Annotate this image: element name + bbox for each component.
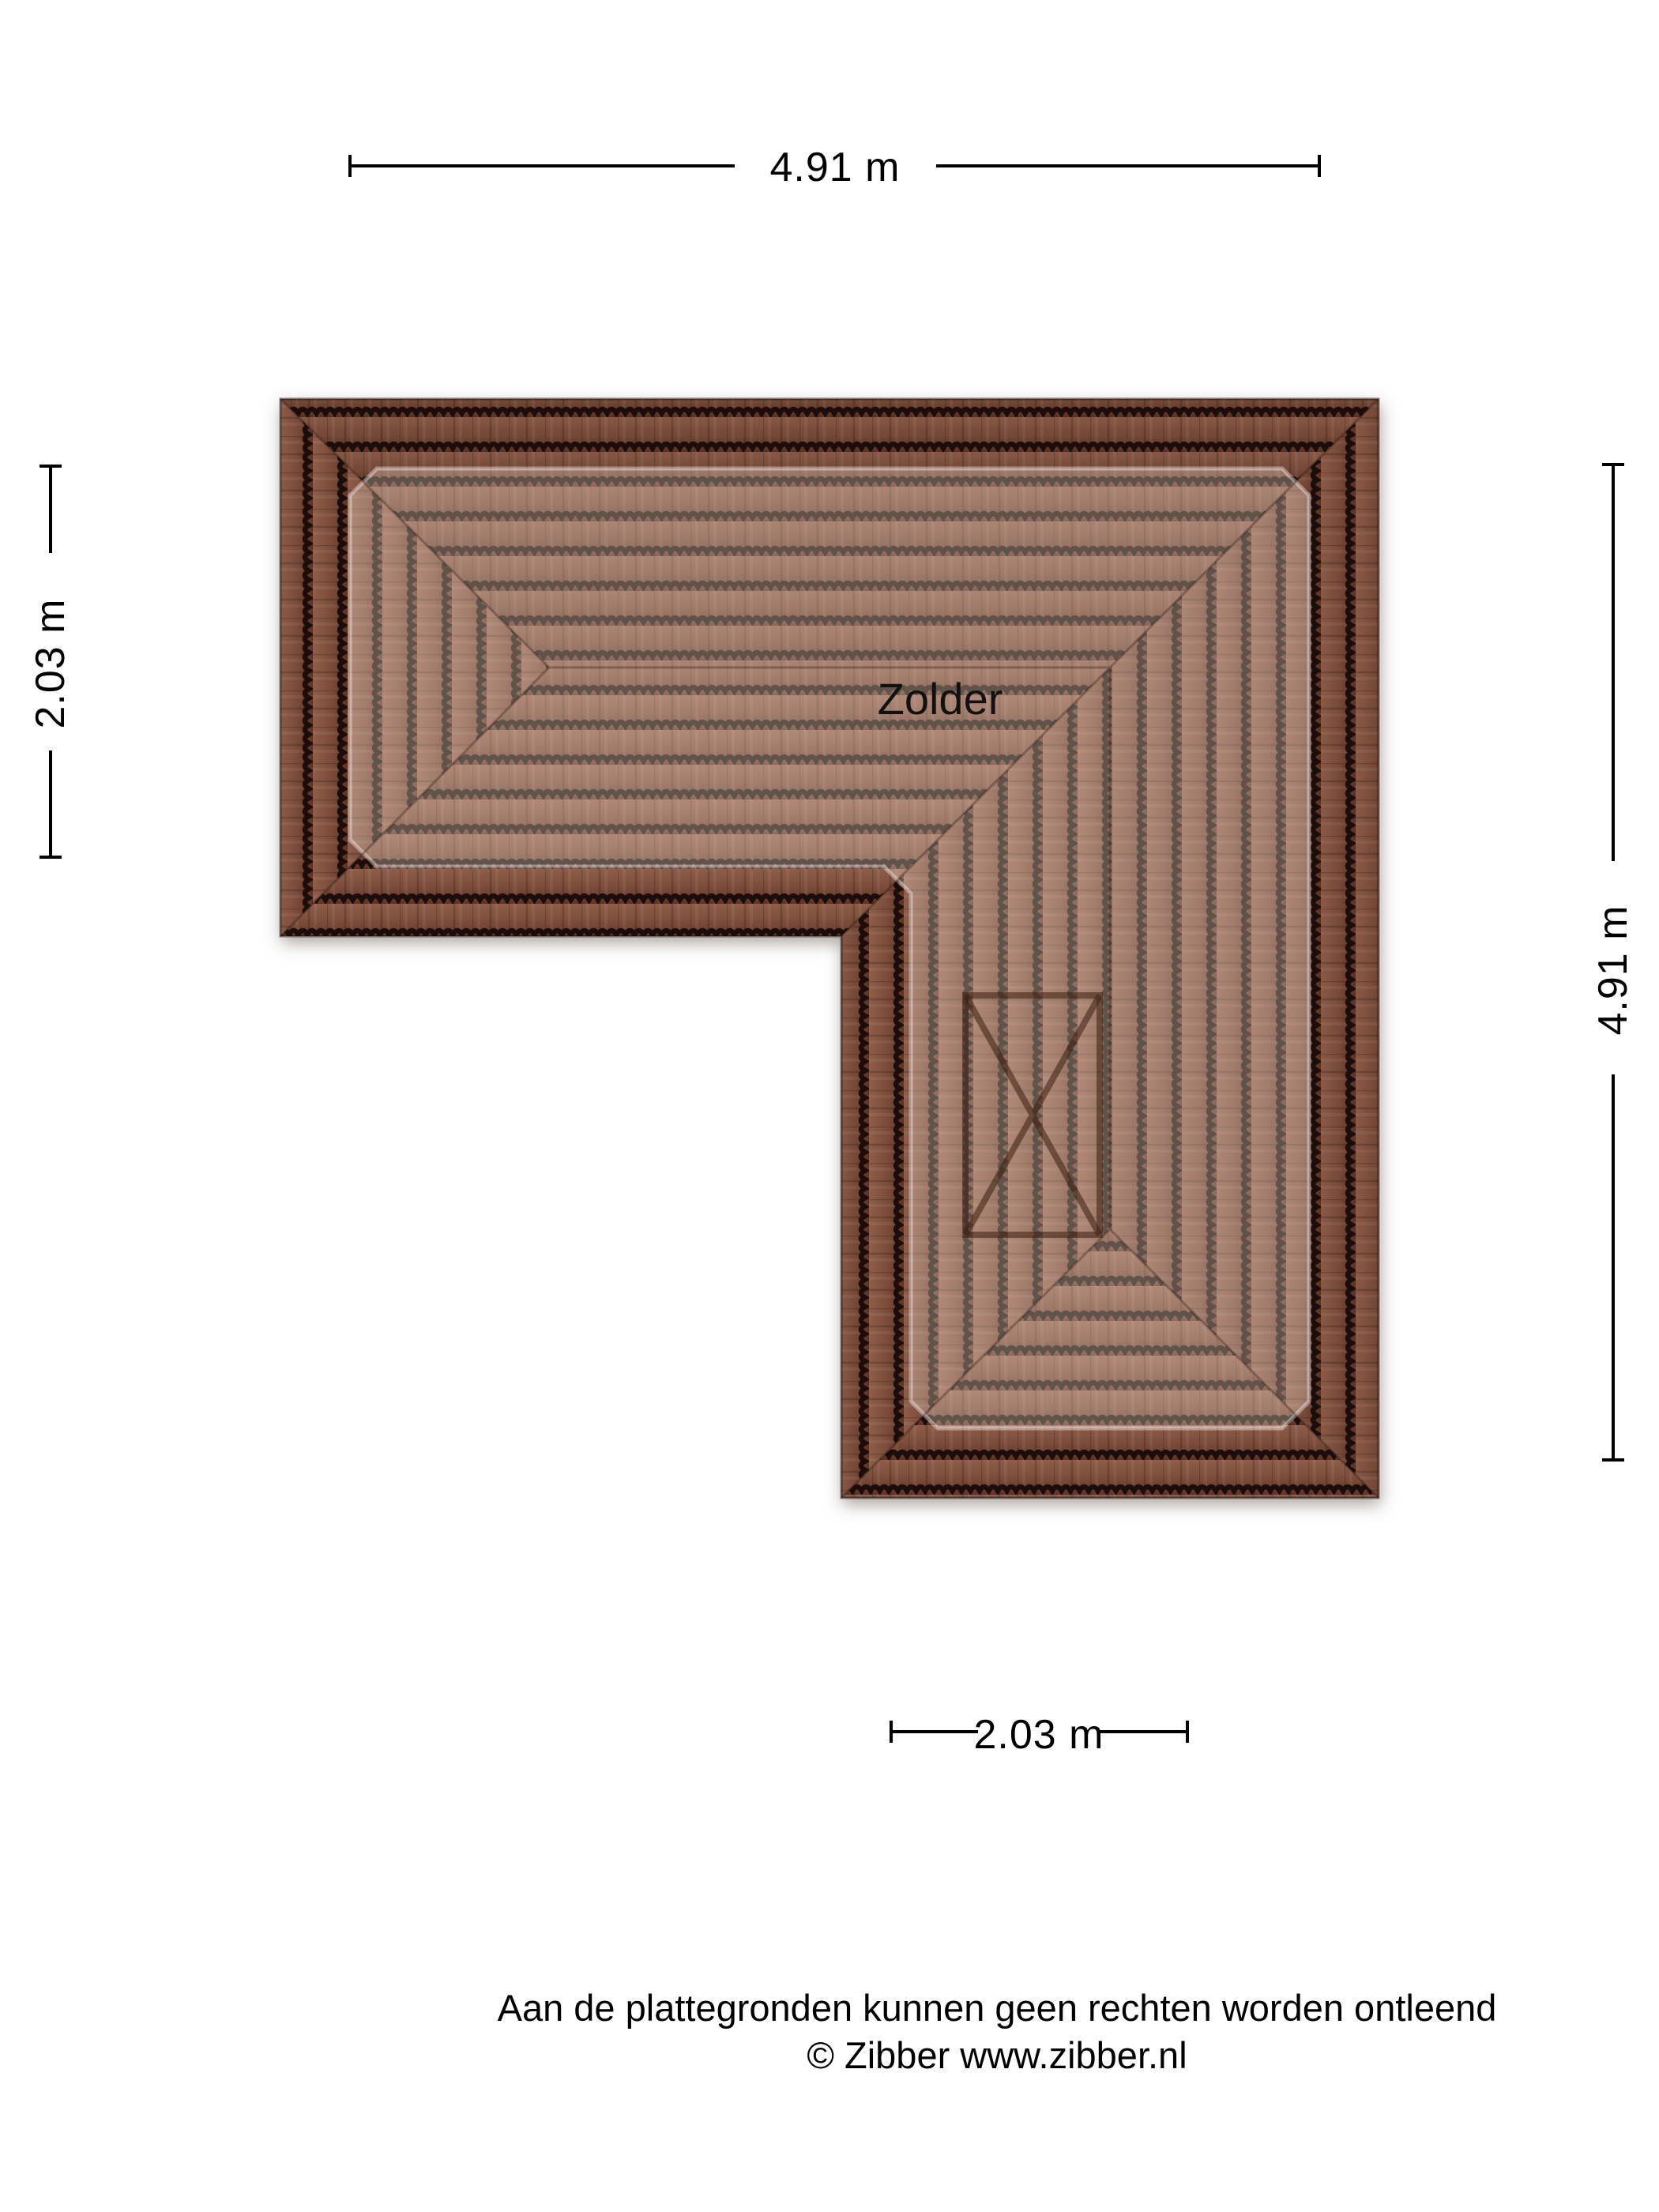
dimension-tick	[1186, 1721, 1189, 1743]
footer-disclaimer: Aan de plattegronden kunnen geen rechten…	[404, 1984, 1589, 2032]
dimension-tick	[1602, 1458, 1624, 1461]
roof-body	[280, 399, 1379, 1498]
dimension-line	[350, 164, 735, 167]
dimension-line	[1100, 1730, 1187, 1733]
dimension-left-label: 2.03 m	[27, 569, 74, 758]
dimension-line	[49, 466, 52, 553]
footer: Aan de plattegronden kunnen geen rechten…	[404, 1984, 1589, 2079]
dimension-line	[936, 164, 1321, 167]
dimension-top-label: 4.91 m	[736, 144, 934, 191]
dimension-line	[1612, 466, 1615, 861]
dimension-tick	[1318, 155, 1321, 177]
floorplan-canvas: 4.91 m 2.03 m 4.91 m 2.03 m Zolder Aan d…	[0, 0, 1659, 2212]
dimension-right-label: 4.91 m	[1589, 867, 1637, 1073]
dimension-tick	[39, 856, 62, 859]
dimension-line	[49, 750, 52, 857]
room-label: Zolder	[822, 673, 1059, 724]
footer-copyright: © Zibber www.zibber.nl	[404, 2032, 1589, 2079]
roof-plan-drawing	[0, 0, 1659, 2212]
dimension-bottom-label: 2.03 m	[944, 1711, 1134, 1759]
dimension-line	[1612, 1074, 1615, 1460]
